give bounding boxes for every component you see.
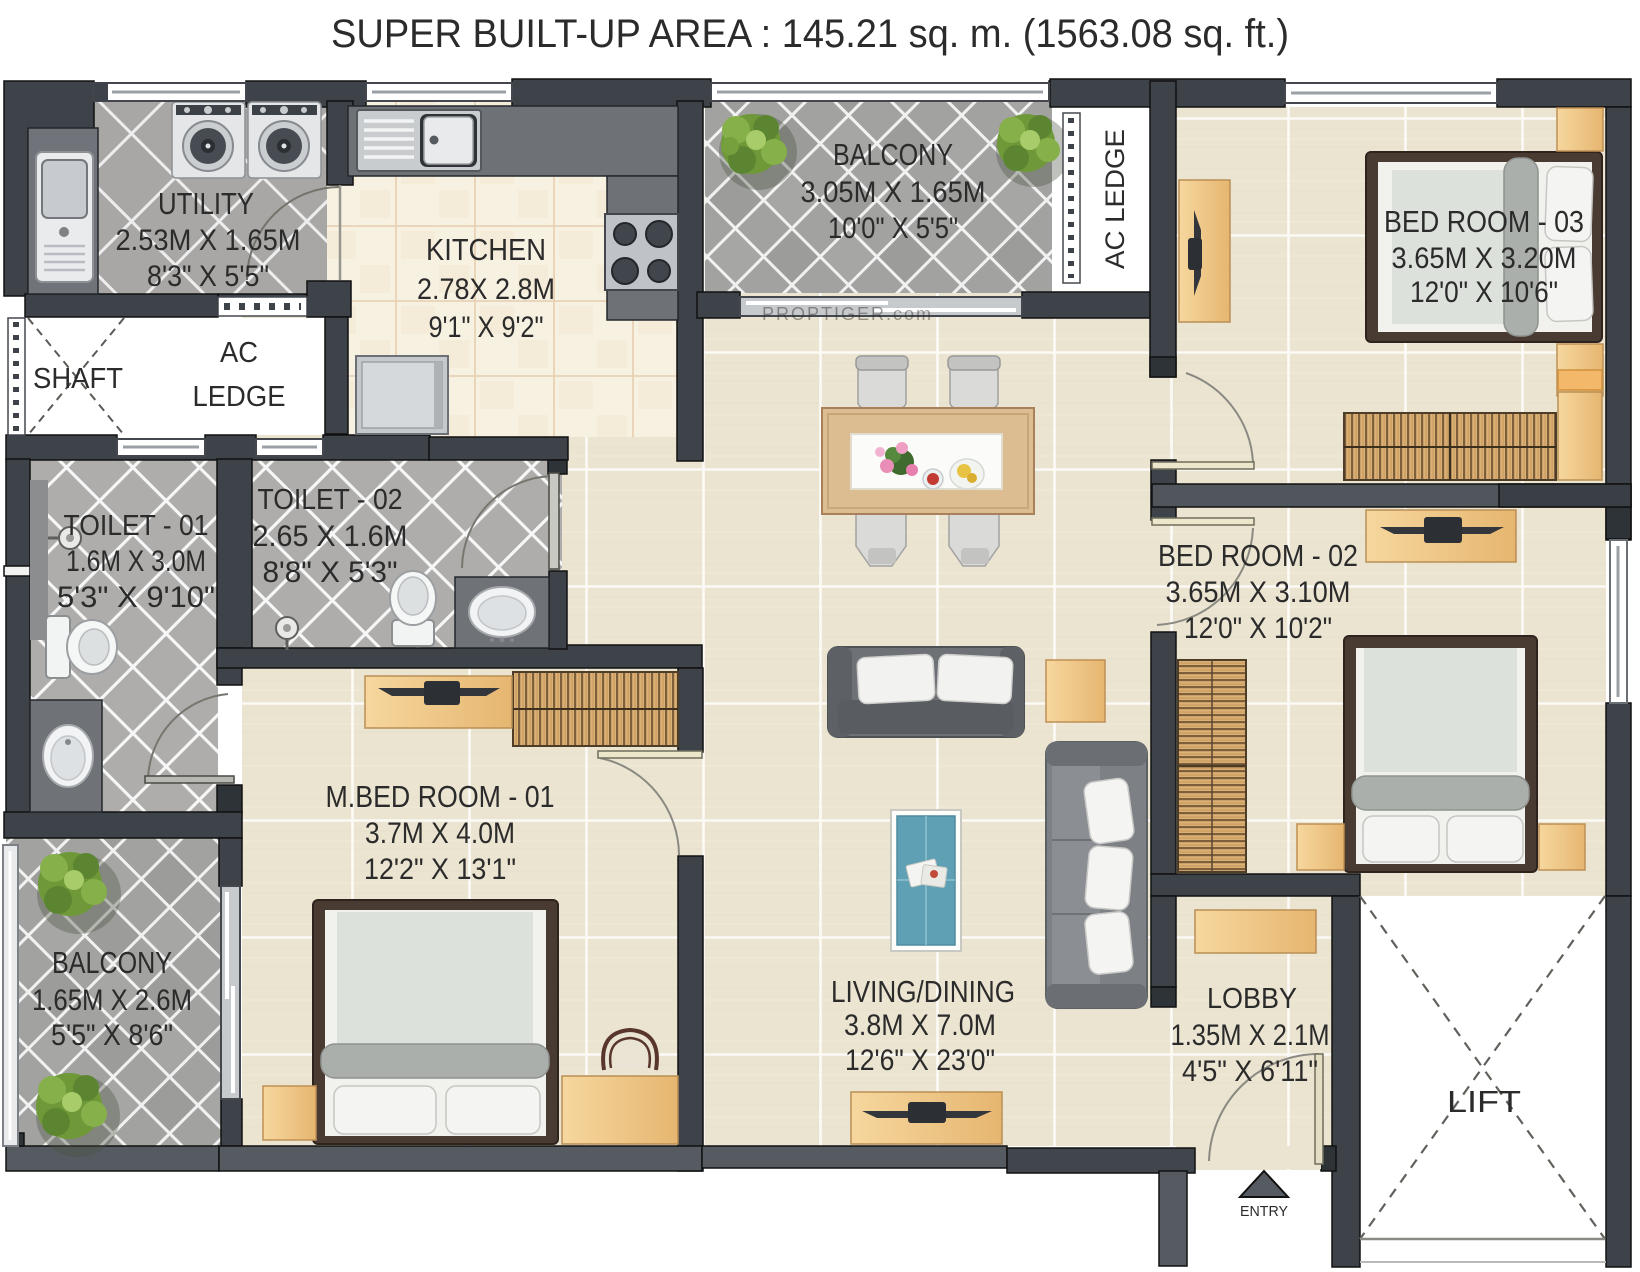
svg-text:3.65M X 3.10M: 3.65M X 3.10M bbox=[1166, 576, 1351, 609]
svg-text:LOBBY: LOBBY bbox=[1207, 983, 1297, 1015]
svg-text:12'6" X 23'0": 12'6" X 23'0" bbox=[845, 1044, 995, 1077]
svg-text:UTILITY: UTILITY bbox=[158, 186, 254, 221]
svg-text:TOILET - 02: TOILET - 02 bbox=[258, 484, 403, 516]
svg-text:AC LEDGE: AC LEDGE bbox=[1100, 129, 1130, 269]
svg-text:LIFT: LIFT bbox=[1447, 1084, 1521, 1119]
svg-text:SUPER BUILT-UP AREA : 145.21 s: SUPER BUILT-UP AREA : 145.21 sq. m. (156… bbox=[331, 12, 1289, 56]
svg-text:2.53M X 1.65M: 2.53M X 1.65M bbox=[116, 224, 301, 257]
svg-text:4'5" X 6'11": 4'5" X 6'11" bbox=[1182, 1055, 1318, 1088]
svg-text:12'2" X 13'1": 12'2" X 13'1" bbox=[364, 853, 516, 886]
svg-text:3.7M X 4.0M: 3.7M X 4.0M bbox=[365, 817, 515, 850]
svg-text:ENTRY: ENTRY bbox=[1240, 1203, 1288, 1220]
svg-text:KITCHEN: KITCHEN bbox=[426, 232, 546, 267]
svg-text:2.78X 2.8M: 2.78X 2.8M bbox=[417, 273, 555, 306]
svg-text:2.65 X 1.6M: 2.65 X 1.6M bbox=[253, 520, 408, 553]
svg-text:1.65M X 2.6M: 1.65M X 2.6M bbox=[32, 984, 192, 1017]
svg-text:3.65M X 3.20M: 3.65M X 3.20M bbox=[1392, 242, 1577, 275]
svg-text:1.6M X 3.0M: 1.6M X 3.0M bbox=[66, 545, 206, 578]
svg-text:SHAFT: SHAFT bbox=[33, 363, 123, 395]
svg-text:PROPTIGER.com: PROPTIGER.com bbox=[762, 304, 933, 324]
svg-text:8'8" X 5'3": 8'8" X 5'3" bbox=[263, 556, 398, 589]
svg-text:AC: AC bbox=[220, 337, 258, 369]
svg-text:BALCONY: BALCONY bbox=[833, 137, 953, 172]
svg-text:M.BED ROOM - 01: M.BED ROOM - 01 bbox=[326, 779, 555, 814]
svg-text:TOILET - 01: TOILET - 01 bbox=[64, 510, 209, 542]
svg-text:5'3" X 9'10": 5'3" X 9'10" bbox=[57, 581, 215, 614]
svg-text:3.05M X 1.65M: 3.05M X 1.65M bbox=[801, 176, 986, 209]
svg-text:BED ROOM - 03: BED ROOM - 03 bbox=[1384, 204, 1584, 239]
svg-text:BALCONY: BALCONY bbox=[52, 945, 172, 980]
svg-text:8'3" X 5'5": 8'3" X 5'5" bbox=[147, 260, 269, 293]
svg-text:LEDGE: LEDGE bbox=[193, 381, 286, 413]
svg-text:12'0" X 10'6": 12'0" X 10'6" bbox=[1410, 276, 1558, 309]
svg-text:5'5" X 8'6": 5'5" X 8'6" bbox=[51, 1019, 173, 1052]
svg-text:10'0" X 5'5": 10'0" X 5'5" bbox=[828, 212, 958, 245]
svg-text:BED ROOM - 02: BED ROOM - 02 bbox=[1158, 538, 1358, 573]
svg-text:3.8M X 7.0M: 3.8M X 7.0M bbox=[844, 1009, 996, 1042]
svg-text:9'1" X 9'2": 9'1" X 9'2" bbox=[429, 311, 544, 344]
svg-text:12'0" X 10'2": 12'0" X 10'2" bbox=[1184, 612, 1332, 645]
svg-text:LIVING/DINING: LIVING/DINING bbox=[831, 974, 1015, 1009]
svg-text:1.35M X 2.1M: 1.35M X 2.1M bbox=[1171, 1019, 1330, 1052]
